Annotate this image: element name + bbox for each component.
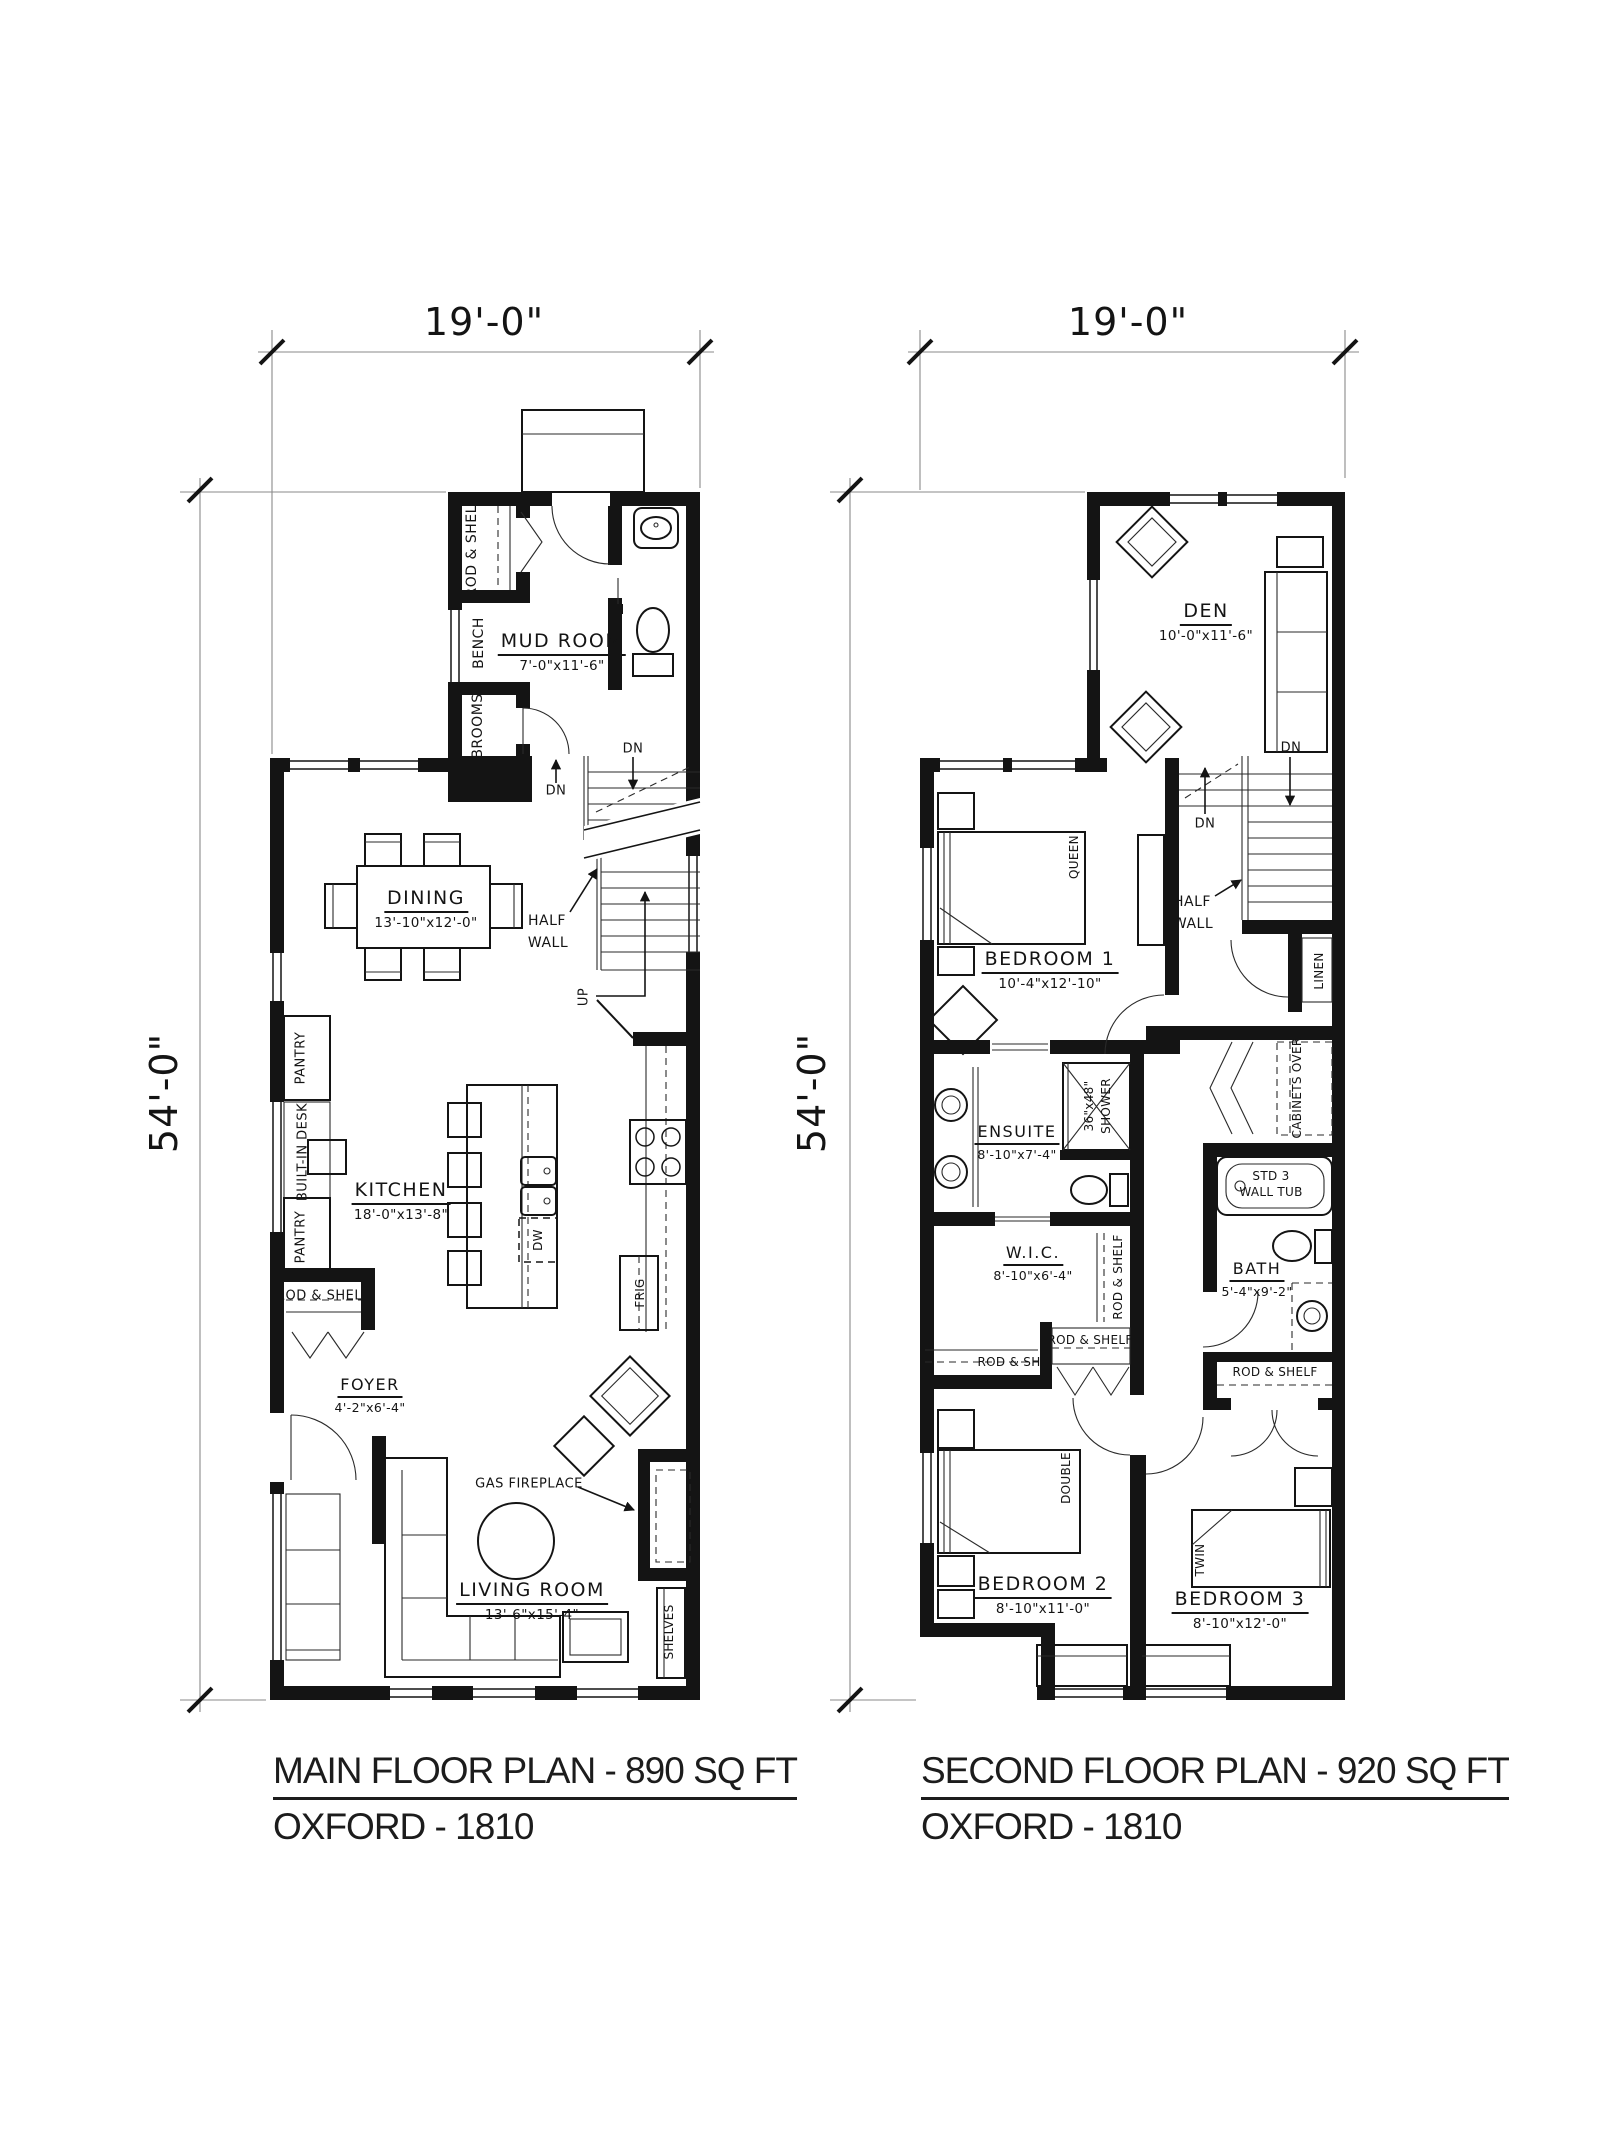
ottoman [554,1416,613,1475]
brooms-label: BROOMS [470,693,486,758]
dim-height-main: 54'-0" [142,1033,186,1153]
coffee-table [478,1503,554,1579]
dim-height-second: 54'-0" [790,1033,834,1153]
dn-label: DN [1281,741,1302,756]
rod-shelf-label: ROD & SHELF [464,497,480,598]
kitchen-island [448,1085,557,1308]
bed-twin [1192,1468,1332,1587]
dishwasher-label: DW [531,1229,545,1251]
shower-size-label: 36"x48" [1082,1081,1096,1132]
half-wall-label: WALL [1173,916,1213,932]
bench-label: BENCH [471,617,487,669]
second-floor-title-block: SECOND FLOOR PLAN - 920 SQ FT OXFORD - 1… [921,1750,1509,1848]
floorplan-sheet: 19'-0" 54'-0" ROD & SHELF BENCH BROOMS M… [0,0,1600,2133]
room-label-bedroom1: BEDROOM 1 10'-4"x12'-10" [982,948,1119,992]
double-bed-label: DOUBLE [1059,1452,1073,1504]
bay-window-seat [286,1494,340,1660]
cabinets-over-label: CABINETS OVER [1290,1038,1304,1139]
second-floor-walls [920,492,1345,1700]
room-label-kitchen: KITCHEN 18'-0"x13'-8" [352,1179,451,1223]
rod-shelf-label: ROD & SHELF [1232,1365,1317,1379]
half-wall-label: HALF [1173,894,1211,910]
main-floor-subtitle: OXFORD - 1810 [273,1806,797,1848]
room-label-den: DEN 10'-0"x11'-6" [1159,600,1253,644]
dim-width-main: 19'-0" [424,300,544,344]
kitchen-sink [521,1157,556,1215]
laundry-cabinets [1277,1042,1332,1135]
stove [630,1120,686,1184]
linen-label: LINEN [1312,952,1326,989]
room-label-bath: BATH 5'-4"x9'-2" [1221,1259,1292,1299]
twin-bed-label: TWIN [1193,1544,1207,1577]
gas-fireplace [578,1470,690,1562]
room-label-wic: W.I.C. 8'-10"x6'-4" [993,1243,1072,1283]
dn-label: DN [623,742,644,757]
room-label-dining: DINING 13'-10"x12'-0" [374,887,477,931]
rod-shelf-label: ROD & SHELF [1047,1333,1132,1347]
half-wall-label: HALF [528,913,566,929]
built-in-desk-label: BUILT-IN DESK [296,1103,311,1201]
tub-label: STD 3 [1252,1169,1289,1183]
tub-label: WALL TUB [1239,1185,1302,1199]
shelves-label: SHELVES [662,1604,676,1659]
room-label-ensuite: ENSUITE 8'-10"x7'-4" [974,1122,1059,1162]
main-floor-title-block: MAIN FLOOR PLAN - 890 SQ FT OXFORD - 181… [273,1750,797,1848]
mudroom-closet [498,506,510,590]
up-label: UP [577,988,592,1006]
second-floor-title: SECOND FLOOR PLAN - 920 SQ FT [921,1750,1509,1800]
queen-bed-label: QUEEN [1067,835,1081,879]
rod-shelf-label: ROD & SHELF [276,1289,370,1304]
room-label-bedroom2: BEDROOM 2 8'-10"x11'-0" [975,1573,1112,1617]
shower-label: SHOWER [1099,1078,1113,1134]
room-label-mud-room: MUD ROOM 7'-0"x11'-6" [498,630,626,674]
fridge-label: FRIG [633,1278,647,1307]
half-wall-label: WALL [528,935,568,951]
rod-shelf-label: ROD & SH [977,1355,1040,1369]
main-floor-title: MAIN FLOOR PLAN - 890 SQ FT [273,1750,797,1800]
dn-label: DN [1195,817,1216,832]
room-label-living-room: LIVING ROOM 13'-6"x15'-4" [456,1579,608,1623]
stoop [522,410,644,492]
second-floor-doors [992,940,1318,1474]
room-label-foyer: FOYER 4'-2"x6'-4" [334,1375,405,1415]
pantry-label: PANTRY [294,1211,309,1264]
dn-label: DN [546,784,567,799]
armchair [590,1356,669,1435]
second-floor-subtitle: OXFORD - 1810 [921,1806,1509,1848]
dim-width-second: 19'-0" [1068,300,1188,344]
dresser [1138,835,1164,945]
pantry-label: PANTRY [294,1032,309,1085]
room-label-bedroom3: BEDROOM 3 8'-10"x12'-0" [1172,1588,1309,1632]
gas-fireplace-label: GAS FIREPLACE [475,1477,583,1492]
rod-shelf-label: ROD & SHELF [1111,1234,1125,1319]
